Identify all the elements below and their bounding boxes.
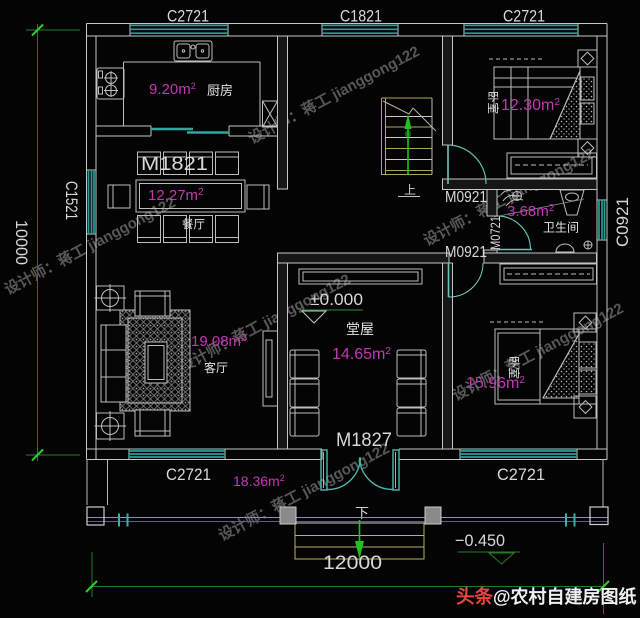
svg-text:M1827: M1827 — [336, 430, 392, 451]
svg-text:C1821: C1821 — [340, 8, 382, 26]
svg-text:19.08m2: 19.08m2 — [191, 333, 247, 350]
svg-text:@农村自建房图纸: @农村自建房图纸 — [493, 586, 637, 607]
svg-text:C2721: C2721 — [167, 8, 209, 26]
svg-text:堂屋: 堂屋 — [346, 321, 374, 337]
svg-text:−0.450: −0.450 — [455, 531, 505, 550]
svg-text:C0921: C0921 — [613, 197, 632, 247]
svg-text:M1821: M1821 — [141, 154, 208, 175]
svg-text:下: 下 — [355, 505, 369, 521]
svg-text:M0921: M0921 — [445, 189, 487, 206]
svg-text:10000: 10000 — [12, 220, 31, 265]
svg-text:厨房: 厨房 — [207, 83, 233, 98]
svg-text:3.68m2: 3.68m2 — [507, 203, 555, 220]
svg-text:上: 上 — [404, 183, 416, 197]
svg-text:12000: 12000 — [323, 553, 382, 574]
svg-text:餐厅: 餐厅 — [182, 217, 205, 231]
svg-text:C2721: C2721 — [497, 466, 545, 484]
svg-text:9.20m2: 9.20m2 — [149, 81, 196, 98]
svg-text:14.65m2: 14.65m2 — [332, 346, 391, 363]
svg-text:卫生间: 卫生间 — [543, 221, 579, 235]
svg-text:M0921: M0921 — [445, 244, 487, 261]
svg-text:12.27m2: 12.27m2 — [148, 187, 204, 204]
svg-text:C2721: C2721 — [166, 466, 211, 484]
svg-text:C1521: C1521 — [62, 181, 80, 220]
svg-text:±0.000: ±0.000 — [310, 290, 363, 309]
svg-text:客厅: 客厅 — [204, 360, 228, 375]
svg-text:头条: 头条 — [456, 586, 494, 607]
svg-text:18.36m2: 18.36m2 — [233, 473, 285, 489]
svg-text:15.96m2: 15.96m2 — [466, 375, 525, 392]
svg-text:C2721: C2721 — [503, 8, 545, 26]
svg-text:M0721: M0721 — [488, 216, 503, 250]
svg-text:卧室: 卧室 — [486, 91, 500, 114]
svg-text:12.30m2: 12.30m2 — [501, 97, 560, 114]
